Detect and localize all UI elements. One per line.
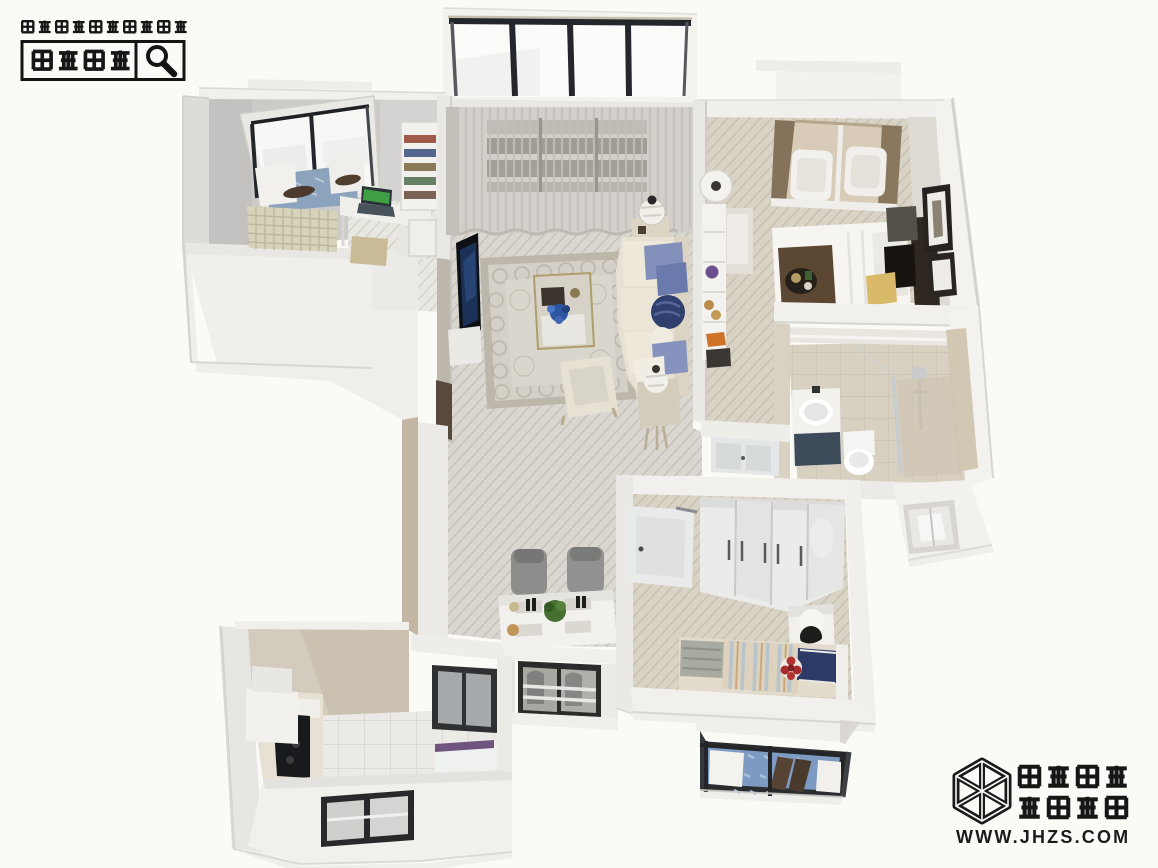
svg-text:WWW.JHZS.COM: WWW.JHZS.COM — [956, 827, 1130, 847]
